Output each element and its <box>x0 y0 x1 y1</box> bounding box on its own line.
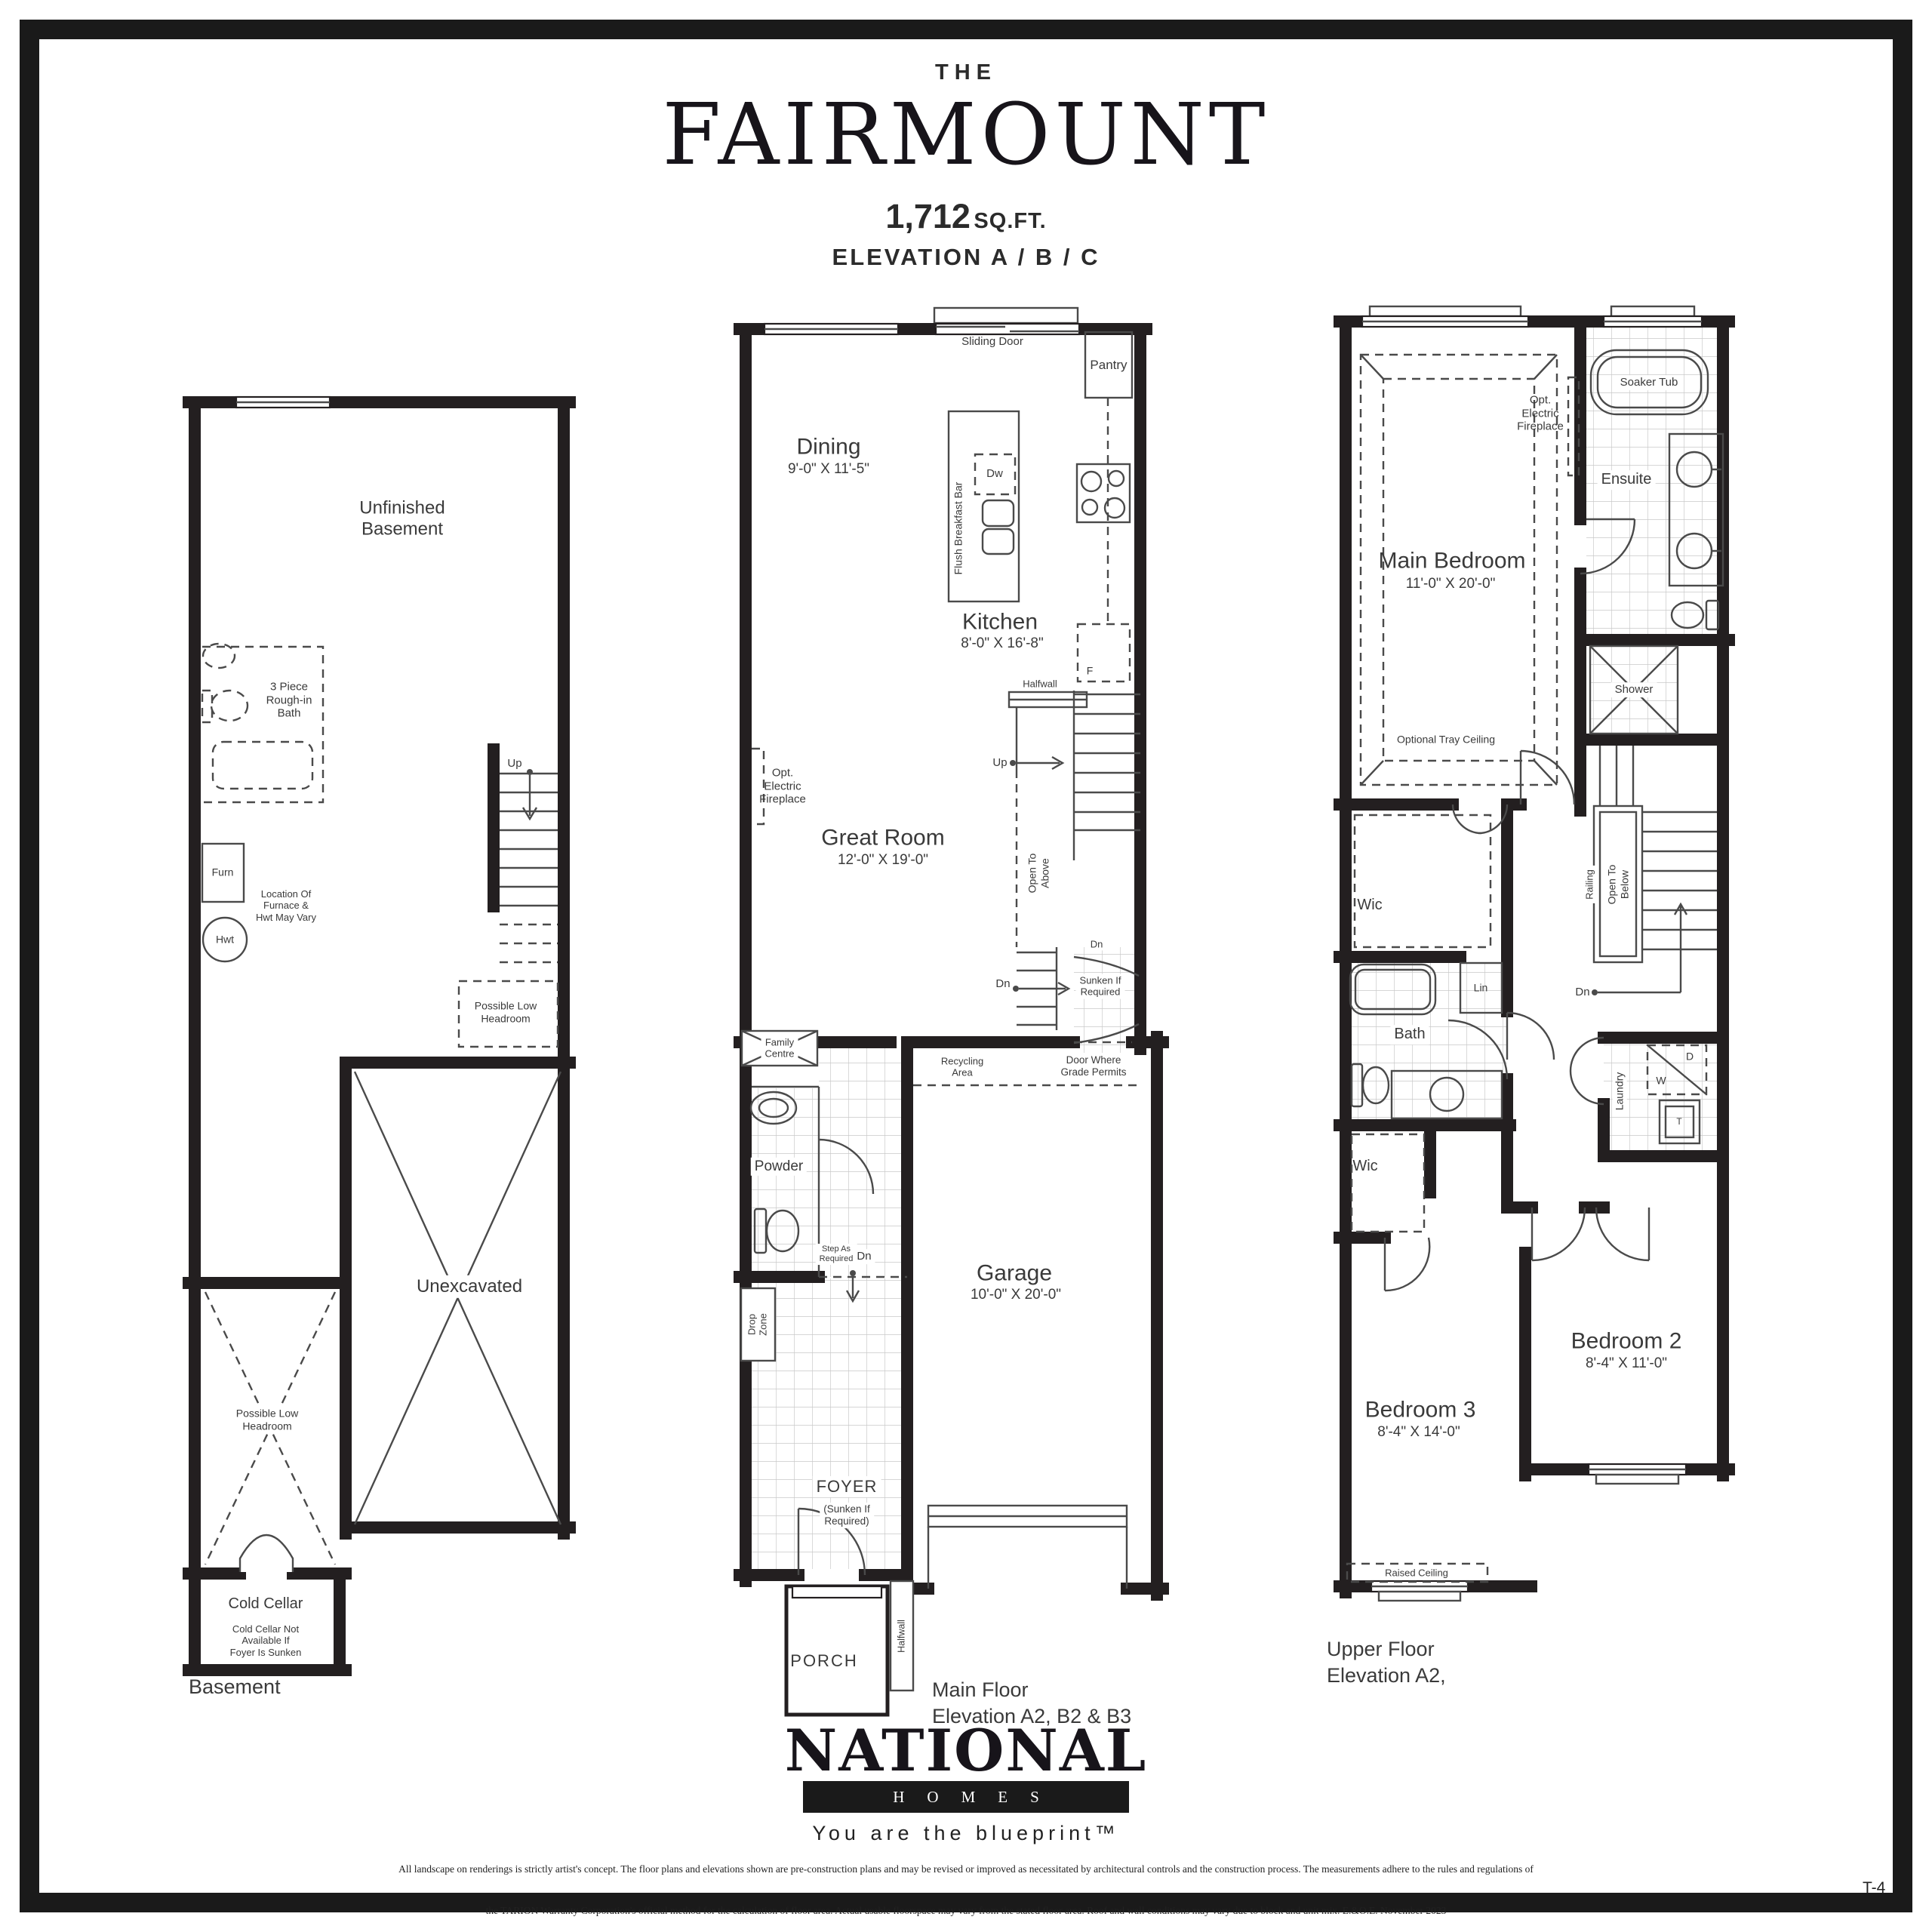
disclaimer-line1: All landscape on renderings is strictly … <box>398 1863 1534 1875</box>
label-low-headroom-stairs: Possible Low Headroom <box>471 998 541 1025</box>
label-wic: Wic <box>1357 897 1382 915</box>
basement-caption: Basement <box>189 1674 281 1700</box>
label-fridge: F <box>1087 665 1094 678</box>
label-sliding-door: Sliding Door <box>961 335 1023 349</box>
label-main-dn2: Dn <box>1087 937 1107 950</box>
label-open-above: Open To Above <box>1025 850 1051 897</box>
label-raised-ceiling: Raised Ceiling <box>1381 1566 1452 1579</box>
label-porch: PORCH <box>790 1651 857 1671</box>
label-furnace-note: Location Of Furnace & Hwt May Vary <box>256 888 316 923</box>
upper-floor-plan: Soaker Tub Opt. Electric Fireplace Ensui… <box>1340 302 1751 1660</box>
label-sunken: Sunken If Required <box>1076 974 1125 999</box>
upper-floor-drawing <box>1340 302 1751 1660</box>
label-dining: Dining <box>796 433 860 460</box>
label-soaker-tub: Soaker Tub <box>1617 375 1682 390</box>
basement-bath-roughin <box>202 644 323 802</box>
title-kicker: THE <box>0 60 1932 85</box>
brand-name: NATIONAL <box>0 1722 1932 1780</box>
label-bedroom2-dims: 8'-4" X 11'-0" <box>1586 1355 1667 1372</box>
basement-plan: Unfinished Basement 3 Piece Rough-in Bat… <box>189 396 581 1702</box>
sliding-door-landing <box>934 308 1078 323</box>
label-main-bedroom: Main Bedroom <box>1378 547 1525 574</box>
label-bath: Bath <box>1390 1025 1429 1044</box>
label-foyer-note: (Sunken If Required) <box>820 1503 874 1528</box>
label-powder: Powder <box>751 1158 807 1176</box>
label-shower: Shower <box>1611 682 1657 697</box>
label-halfwall-porch: Halfwall <box>897 1620 908 1653</box>
kitchen-fixtures <box>1077 332 1132 681</box>
porch-structure <box>786 1581 913 1715</box>
label-breakfast-bar: Flush Breakfast Bar <box>952 482 965 575</box>
label-unfinished-basement: Unfinished Basement <box>359 498 445 541</box>
label-great-room: Great Room <box>821 824 944 851</box>
label-ensuite: Ensuite <box>1598 470 1656 490</box>
basement-window <box>236 397 330 408</box>
brand-sub: HOMES <box>803 1781 1129 1813</box>
label-wic2: Wic <box>1352 1158 1377 1176</box>
label-laundry: Laundry <box>1613 1069 1627 1115</box>
label-lin: Lin <box>1474 982 1488 995</box>
label-dining-dims: 9'-0" X 11'-5" <box>788 461 869 478</box>
label-tray-ceiling: Optional Tray Ceiling <box>1393 733 1499 747</box>
label-upper-fireplace: Opt. Electric Fireplace <box>1517 393 1564 433</box>
sqft-value: 1,712 <box>885 197 971 235</box>
brand-tagline: You are the blueprint™ <box>0 1822 1932 1845</box>
basement-drawing <box>189 396 581 1702</box>
label-dryer: D <box>1686 1051 1694 1063</box>
title-block: THE FAIRMOUNT 1,712 SQ.FT. ELEVATION A /… <box>0 60 1932 271</box>
label-kitchen-dims: 8'-0" X 16'-8" <box>961 635 1043 652</box>
label-cold-cellar: Cold Cellar <box>229 1595 303 1614</box>
label-kitchen: Kitchen <box>962 608 1038 635</box>
disclaimer-text: All landscape on renderings is strictly … <box>211 1849 1721 1918</box>
label-great-room-dims: 12'-0" X 19'-0" <box>838 852 928 869</box>
label-furn: Furn <box>212 866 234 879</box>
label-recycling: Recycling Area <box>941 1056 983 1079</box>
label-hwt: Hwt <box>216 934 234 946</box>
page-code: T-4 <box>1863 1879 1885 1897</box>
label-main-dn: Dn <box>995 977 1010 991</box>
page-title: FAIRMOUNT <box>0 91 1932 180</box>
label-family-centre: Family Centre <box>761 1036 798 1061</box>
label-step-required: Step As Required <box>816 1244 857 1265</box>
label-basement-up: Up <box>507 757 521 771</box>
label-cold-cellar-note: Cold Cellar Not Available If Foyer Is Su… <box>230 1623 302 1658</box>
floorplan-sheet: THE FAIRMOUNT 1,712 SQ.FT. ELEVATION A /… <box>0 0 1932 1932</box>
label-door-grade: Door Where Grade Permits <box>1060 1054 1126 1078</box>
main-floor-plan: Sliding Door Pantry Dining 9'-0" X 11'-5… <box>740 302 1174 1743</box>
label-main-bedroom-dims: 11'-0" X 20'-0" <box>1406 576 1496 592</box>
cold-cellar-door <box>240 1535 293 1572</box>
label-garage-dims: 10'-0" X 20'-0" <box>971 1287 1061 1303</box>
label-bedroom3-dims: 8'-4" X 14'-0" <box>1377 1424 1460 1441</box>
label-bedroom2: Bedroom 2 <box>1571 1327 1682 1354</box>
label-upper-dn: Dn <box>1575 986 1589 999</box>
upper-floor-caption: Upper Floor Elevation A2, <box>1327 1636 1446 1689</box>
sqft-line: 1,712 SQ.FT. <box>0 197 1932 236</box>
label-low-headroom: Possible Low Headroom <box>232 1406 303 1432</box>
label-laundry-tub: T <box>1676 1116 1681 1127</box>
label-pantry: Pantry <box>1090 358 1127 373</box>
label-bedroom3: Bedroom 3 <box>1365 1396 1476 1423</box>
label-washer: W <box>1656 1075 1666 1088</box>
label-halfwall: Halfwall <box>1019 677 1061 690</box>
label-drop-zone: Drop Zone <box>746 1313 770 1336</box>
label-roughin-bath: 3 Piece Rough-in Bath <box>266 680 312 720</box>
label-main-up: Up <box>992 756 1007 770</box>
sqft-unit: SQ.FT. <box>974 209 1046 233</box>
label-railing: Railing <box>1583 866 1595 903</box>
label-dn3: Dn <box>853 1249 875 1264</box>
label-dw: Dw <box>986 467 1003 481</box>
garage-door <box>928 1506 1127 1589</box>
label-garage: Garage <box>977 1260 1052 1286</box>
elevation-line: ELEVATION A / B / C <box>0 244 1932 271</box>
disclaimer-line2: the TARION Warranty Corporation's offici… <box>486 1905 1447 1916</box>
label-unexcavated: Unexcavated <box>413 1275 526 1298</box>
label-foyer: FOYER <box>813 1476 881 1497</box>
brand-logo: NATIONAL HOMES You are the blueprint™ <box>0 1722 1932 1845</box>
label-main-fireplace: Opt. Electric Fireplace <box>759 766 806 806</box>
label-open-below: Open To Below <box>1604 861 1631 909</box>
